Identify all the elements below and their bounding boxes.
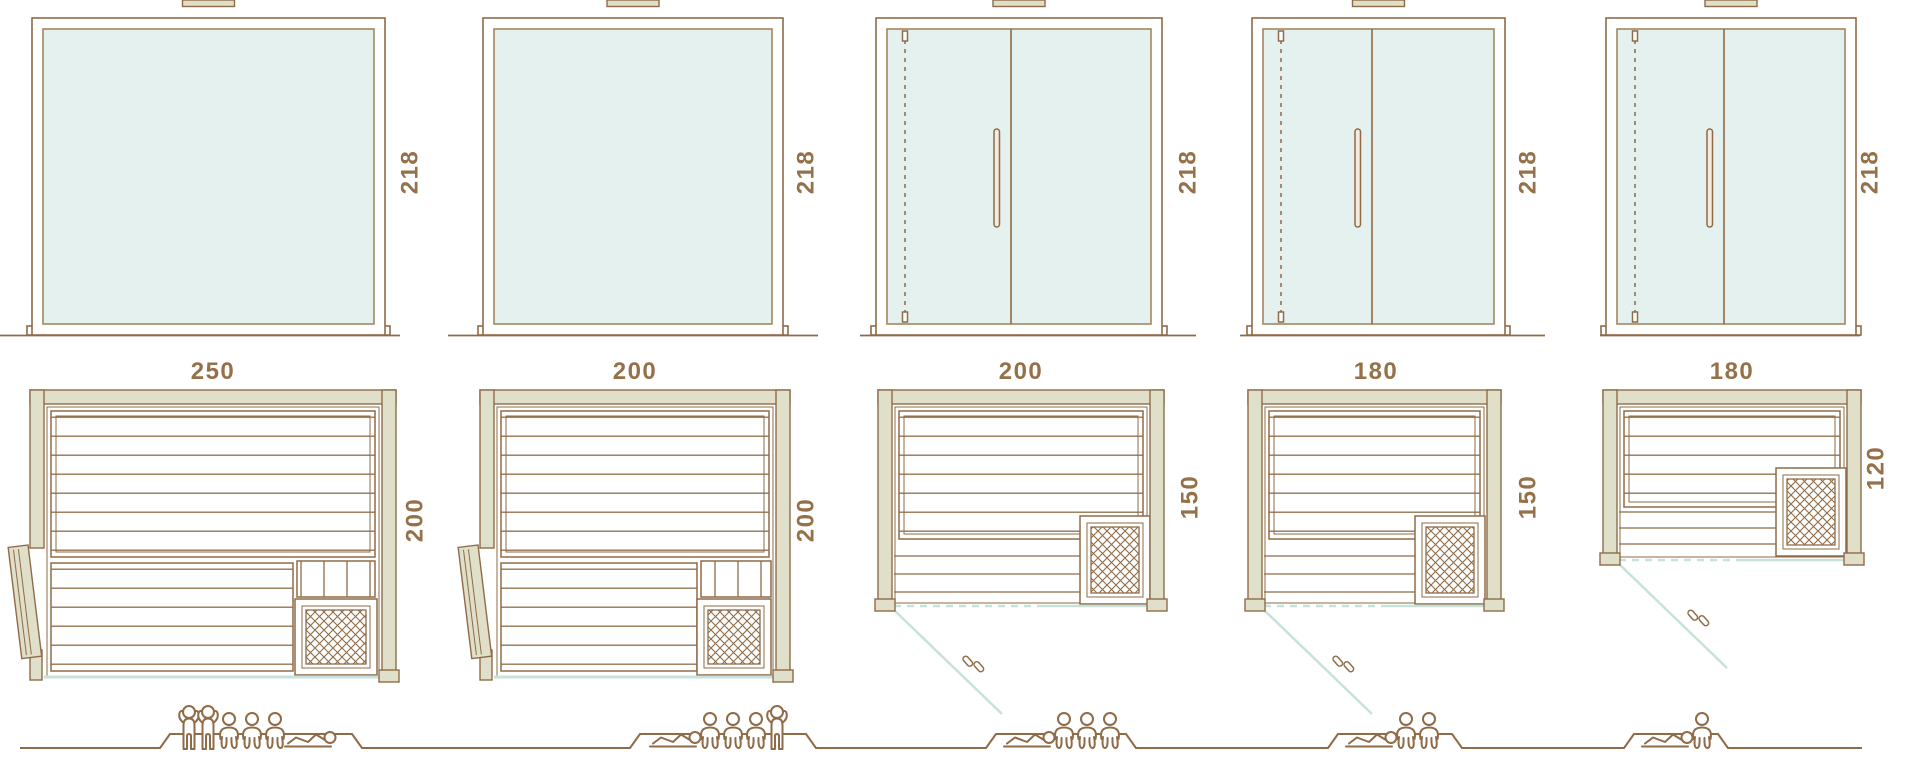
door-handle-icon [1707, 129, 1713, 227]
open-glass-door-line [1619, 564, 1727, 668]
person-seated-icon [1078, 713, 1096, 748]
glass-panel [494, 29, 772, 324]
wall-left [1603, 390, 1617, 562]
wall-right [1150, 390, 1164, 608]
heater-grille-icon [1787, 479, 1835, 545]
person-seated-icon [1055, 713, 1073, 748]
open-glass-door-line [1264, 610, 1372, 714]
sauna-comparison-diagram: 218 218 218 218 [0, 0, 1920, 770]
hinge-icon [903, 31, 908, 41]
upper-bench [501, 411, 769, 557]
capacity-group-3 [1004, 713, 1119, 748]
capacity-group-2 [650, 706, 787, 749]
width-label-1: 250 [191, 358, 236, 385]
depth-label-4: 150 [1515, 475, 1542, 520]
person-seated-icon [1397, 713, 1415, 748]
elevation-3 [871, 0, 1167, 335]
wall-top [480, 390, 790, 404]
depth-label-3: 150 [1177, 475, 1204, 520]
wall-top [1603, 390, 1861, 404]
elevation-1 [27, 0, 390, 335]
roof-vent-icon [1705, 0, 1757, 7]
roof-vent-icon [607, 0, 659, 7]
capacity-group-1 [179, 706, 335, 749]
person-seated-icon [1101, 713, 1119, 748]
wall-right [1487, 390, 1501, 608]
open-door-leaf [458, 545, 492, 659]
lower-bench [51, 563, 293, 671]
upper-bench [51, 411, 375, 557]
person-seated-icon [724, 713, 742, 748]
wall-right [1847, 390, 1861, 562]
door-handle-icon [994, 129, 1000, 227]
depth-label-2: 200 [793, 498, 820, 543]
person-seated-icon [747, 713, 765, 748]
width-label-2: 200 [613, 358, 658, 385]
bench-step [701, 561, 771, 597]
hinge-icon [1279, 31, 1284, 41]
wall-left [878, 390, 892, 608]
depth-label-5: 120 [1863, 446, 1890, 491]
floor-plan-2 [458, 390, 793, 682]
door-handle-icon [1332, 652, 1355, 676]
hinge-icon [1279, 312, 1284, 322]
person-standing-icon [198, 706, 218, 749]
person-standing-icon [767, 706, 787, 749]
elevation-5 [1601, 0, 1861, 335]
diagram-canvas: 218 218 218 218 [0, 0, 1920, 770]
hinge-icon [1633, 312, 1638, 322]
roof-vent-icon [993, 0, 1045, 7]
glass-door-panel [887, 29, 1151, 324]
person-seated-icon [701, 713, 719, 748]
person-seated-icon [1693, 713, 1711, 748]
heater-grille-icon [1091, 527, 1139, 593]
roof-vent-icon [1353, 0, 1405, 7]
width-label-5: 180 [1710, 358, 1755, 385]
depth-label-1: 200 [402, 498, 429, 543]
open-door-leaf [8, 545, 42, 659]
heater-grille-icon [306, 610, 366, 664]
elevation-2 [478, 0, 788, 335]
height-label-5: 218 [1857, 150, 1884, 195]
hinge-icon [903, 312, 908, 322]
heater-grille-icon [708, 610, 760, 664]
door-handle-icon [1355, 129, 1361, 227]
glass-panel [43, 29, 374, 324]
height-label-1: 218 [397, 150, 424, 195]
bench-step [297, 561, 375, 597]
person-seated-icon [220, 713, 238, 748]
door-handle-icon [1687, 606, 1710, 630]
width-label-3: 200 [999, 358, 1044, 385]
width-label-4: 180 [1354, 358, 1399, 385]
height-label-4: 218 [1515, 150, 1542, 195]
floor-plan-1 [8, 390, 399, 682]
person-seated-icon [1420, 713, 1438, 748]
wall-right [382, 390, 396, 680]
floor-boards [1619, 512, 1776, 544]
elevation-4 [1247, 0, 1510, 335]
heater-grille-icon [1426, 527, 1474, 593]
hinge-icon [1633, 31, 1638, 41]
wall-top [878, 390, 1164, 404]
wall-top [30, 390, 396, 404]
wall-right [776, 390, 790, 680]
glass-door-panel [1263, 29, 1494, 324]
roof-vent-icon [183, 0, 235, 7]
capacity-group-4 [1346, 713, 1438, 748]
lower-bench [501, 563, 697, 671]
wall-left [480, 390, 494, 548]
person-seated-icon [266, 713, 284, 748]
floor-plan-3 [875, 390, 1167, 714]
person-standing-icon [179, 706, 199, 749]
door-handle-icon [962, 652, 985, 676]
capacity-group-5 [1642, 713, 1711, 748]
wall-top [1248, 390, 1501, 404]
height-label-2: 218 [793, 150, 820, 195]
wall-left [1248, 390, 1262, 608]
person-seated-icon [243, 713, 261, 748]
height-label-3: 218 [1175, 150, 1202, 195]
wall-left [30, 390, 44, 548]
open-glass-door-line [894, 610, 1002, 714]
glass-door-panel [1617, 29, 1845, 324]
floor-plan-5 [1600, 390, 1864, 668]
floor-plan-4 [1245, 390, 1504, 714]
